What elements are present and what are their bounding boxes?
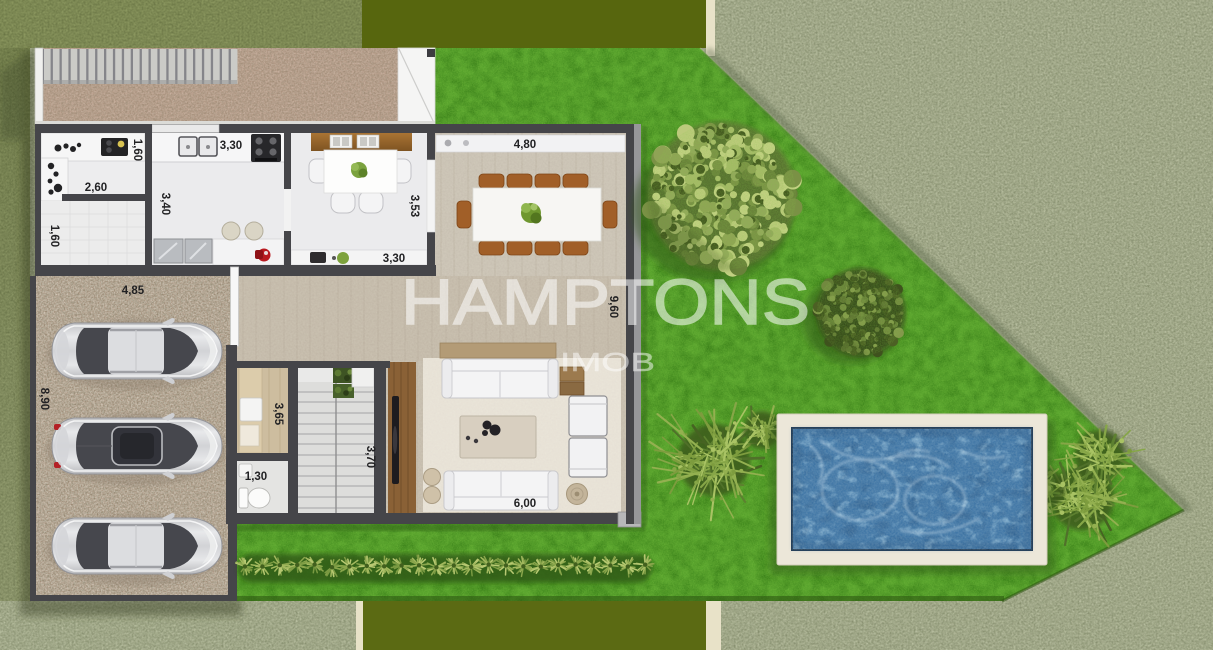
svg-text:IMOB: IMOB (560, 347, 655, 377)
svg-text:6,00: 6,00 (514, 498, 536, 510)
svg-text:1,60: 1,60 (48, 225, 60, 247)
svg-text:3,65: 3,65 (272, 403, 284, 426)
svg-text:4,80: 4,80 (514, 139, 536, 151)
svg-text:2,60: 2,60 (85, 182, 107, 194)
svg-text:1,60: 1,60 (131, 139, 143, 161)
svg-text:4,85: 4,85 (122, 285, 145, 297)
svg-text:3,70: 3,70 (364, 446, 376, 468)
svg-text:3,53: 3,53 (408, 195, 420, 217)
svg-text:3,30: 3,30 (383, 253, 405, 265)
svg-text:8,90: 8,90 (38, 388, 50, 410)
svg-text:3,30: 3,30 (220, 140, 242, 152)
svg-text:1,30: 1,30 (245, 471, 267, 483)
svg-text:HAMPTONS: HAMPTONS (401, 266, 810, 338)
svg-text:3,40: 3,40 (159, 193, 171, 215)
svg-text:9,60: 9,60 (607, 296, 619, 318)
